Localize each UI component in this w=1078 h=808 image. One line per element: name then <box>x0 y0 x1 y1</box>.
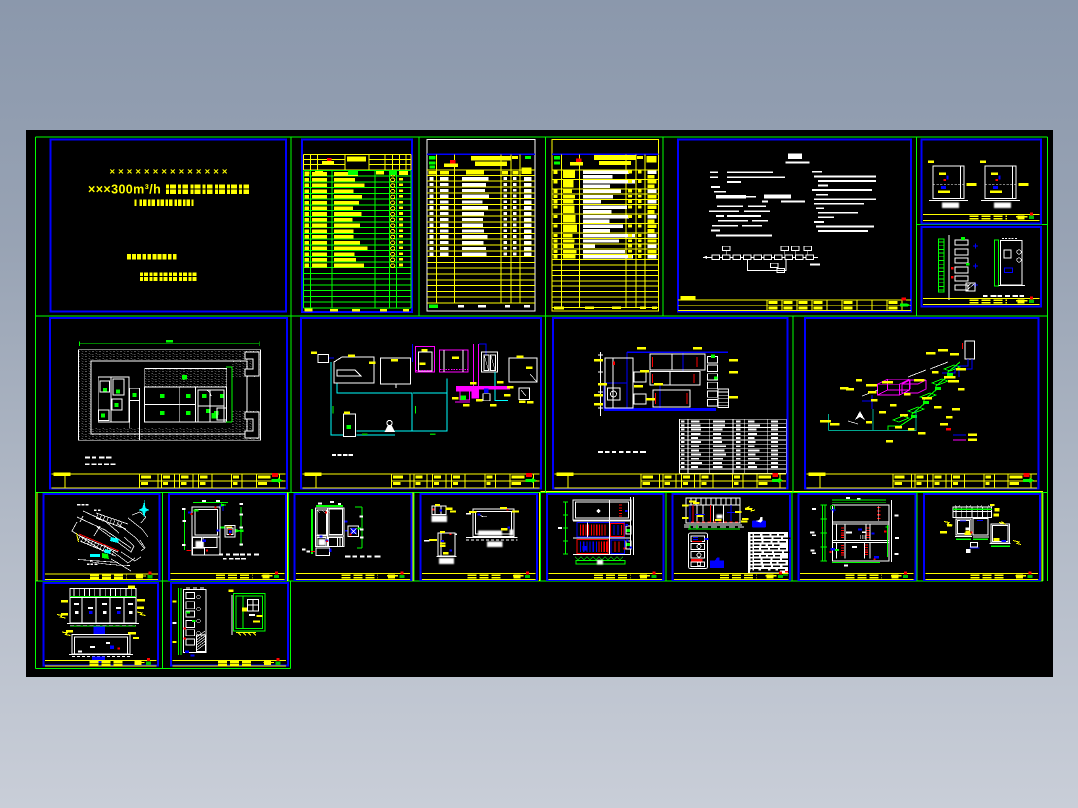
svg-text:××××××××××××××: ×××××××××××××× <box>109 167 230 178</box>
svg-text:×××300m³/h: ×××300m³/h <box>88 183 161 197</box>
